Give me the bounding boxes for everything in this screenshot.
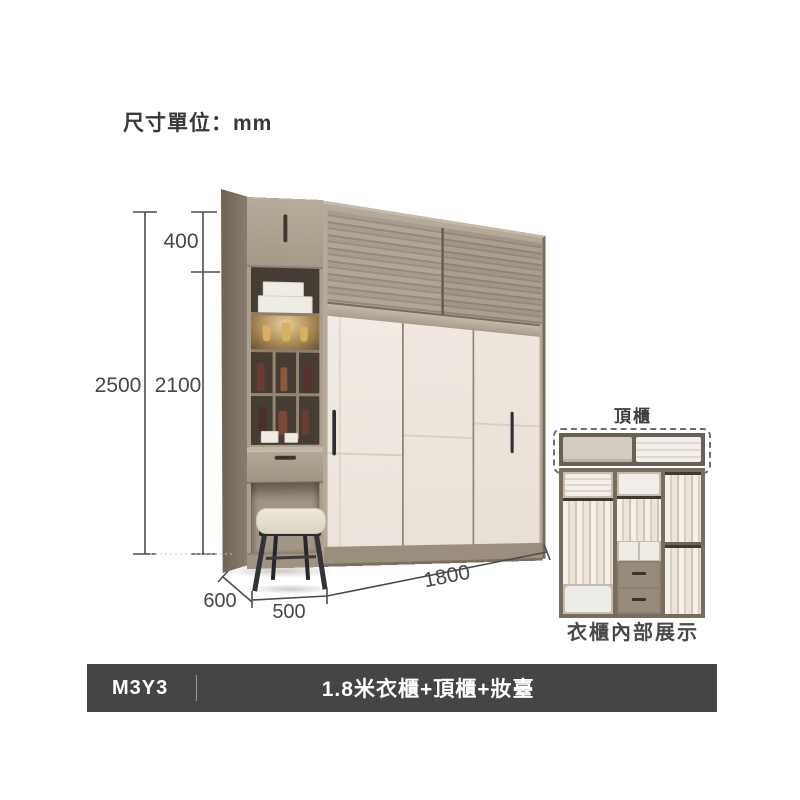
interior-column-middle <box>617 472 661 614</box>
storage-bin <box>565 586 611 612</box>
small-box <box>619 542 638 560</box>
hanging-clothes <box>563 501 613 584</box>
small-boxes <box>619 542 659 560</box>
dim-depth: 600 <box>198 590 242 613</box>
inset-caption: 衣櫃內部展示 <box>552 616 714 645</box>
product-title: 1.8米衣櫃+頂櫃+妝臺 <box>197 673 717 703</box>
drawer-handle <box>632 572 646 575</box>
product-title-bar: M3Y3 1.8米衣櫃+頂櫃+妝臺 <box>87 664 717 712</box>
interior-inset: 頂櫃 <box>552 402 714 652</box>
inset-wardrobe-interior <box>559 468 705 618</box>
interior-drawer <box>619 563 659 587</box>
unit-note: 尺寸單位：mm <box>123 107 272 137</box>
interior-drawer <box>619 589 659 613</box>
hanging-clothes <box>617 499 661 541</box>
interior-drawers <box>617 561 661 614</box>
dim-total-height: 2500 <box>94 374 142 398</box>
storage-box <box>619 474 659 494</box>
interior-column-left <box>563 472 613 614</box>
dim-line-500 <box>252 596 327 600</box>
model-code: M3Y3 <box>87 677 168 700</box>
product-dimension-diagram: 尺寸單位：mm <box>0 0 800 800</box>
folded-towels <box>565 474 611 496</box>
dim-vanity-width: 500 <box>265 601 313 624</box>
small-box <box>640 542 659 560</box>
dim-main-height: 2100 <box>154 374 202 398</box>
hanging-clothes <box>665 548 701 615</box>
hanging-clothes <box>665 475 701 542</box>
interior-column-right <box>665 472 701 614</box>
top-cabinet-label: 頂櫃 <box>552 402 714 427</box>
drawer-handle <box>632 598 646 601</box>
dim-top-cabinet-height: 400 <box>157 230 205 254</box>
